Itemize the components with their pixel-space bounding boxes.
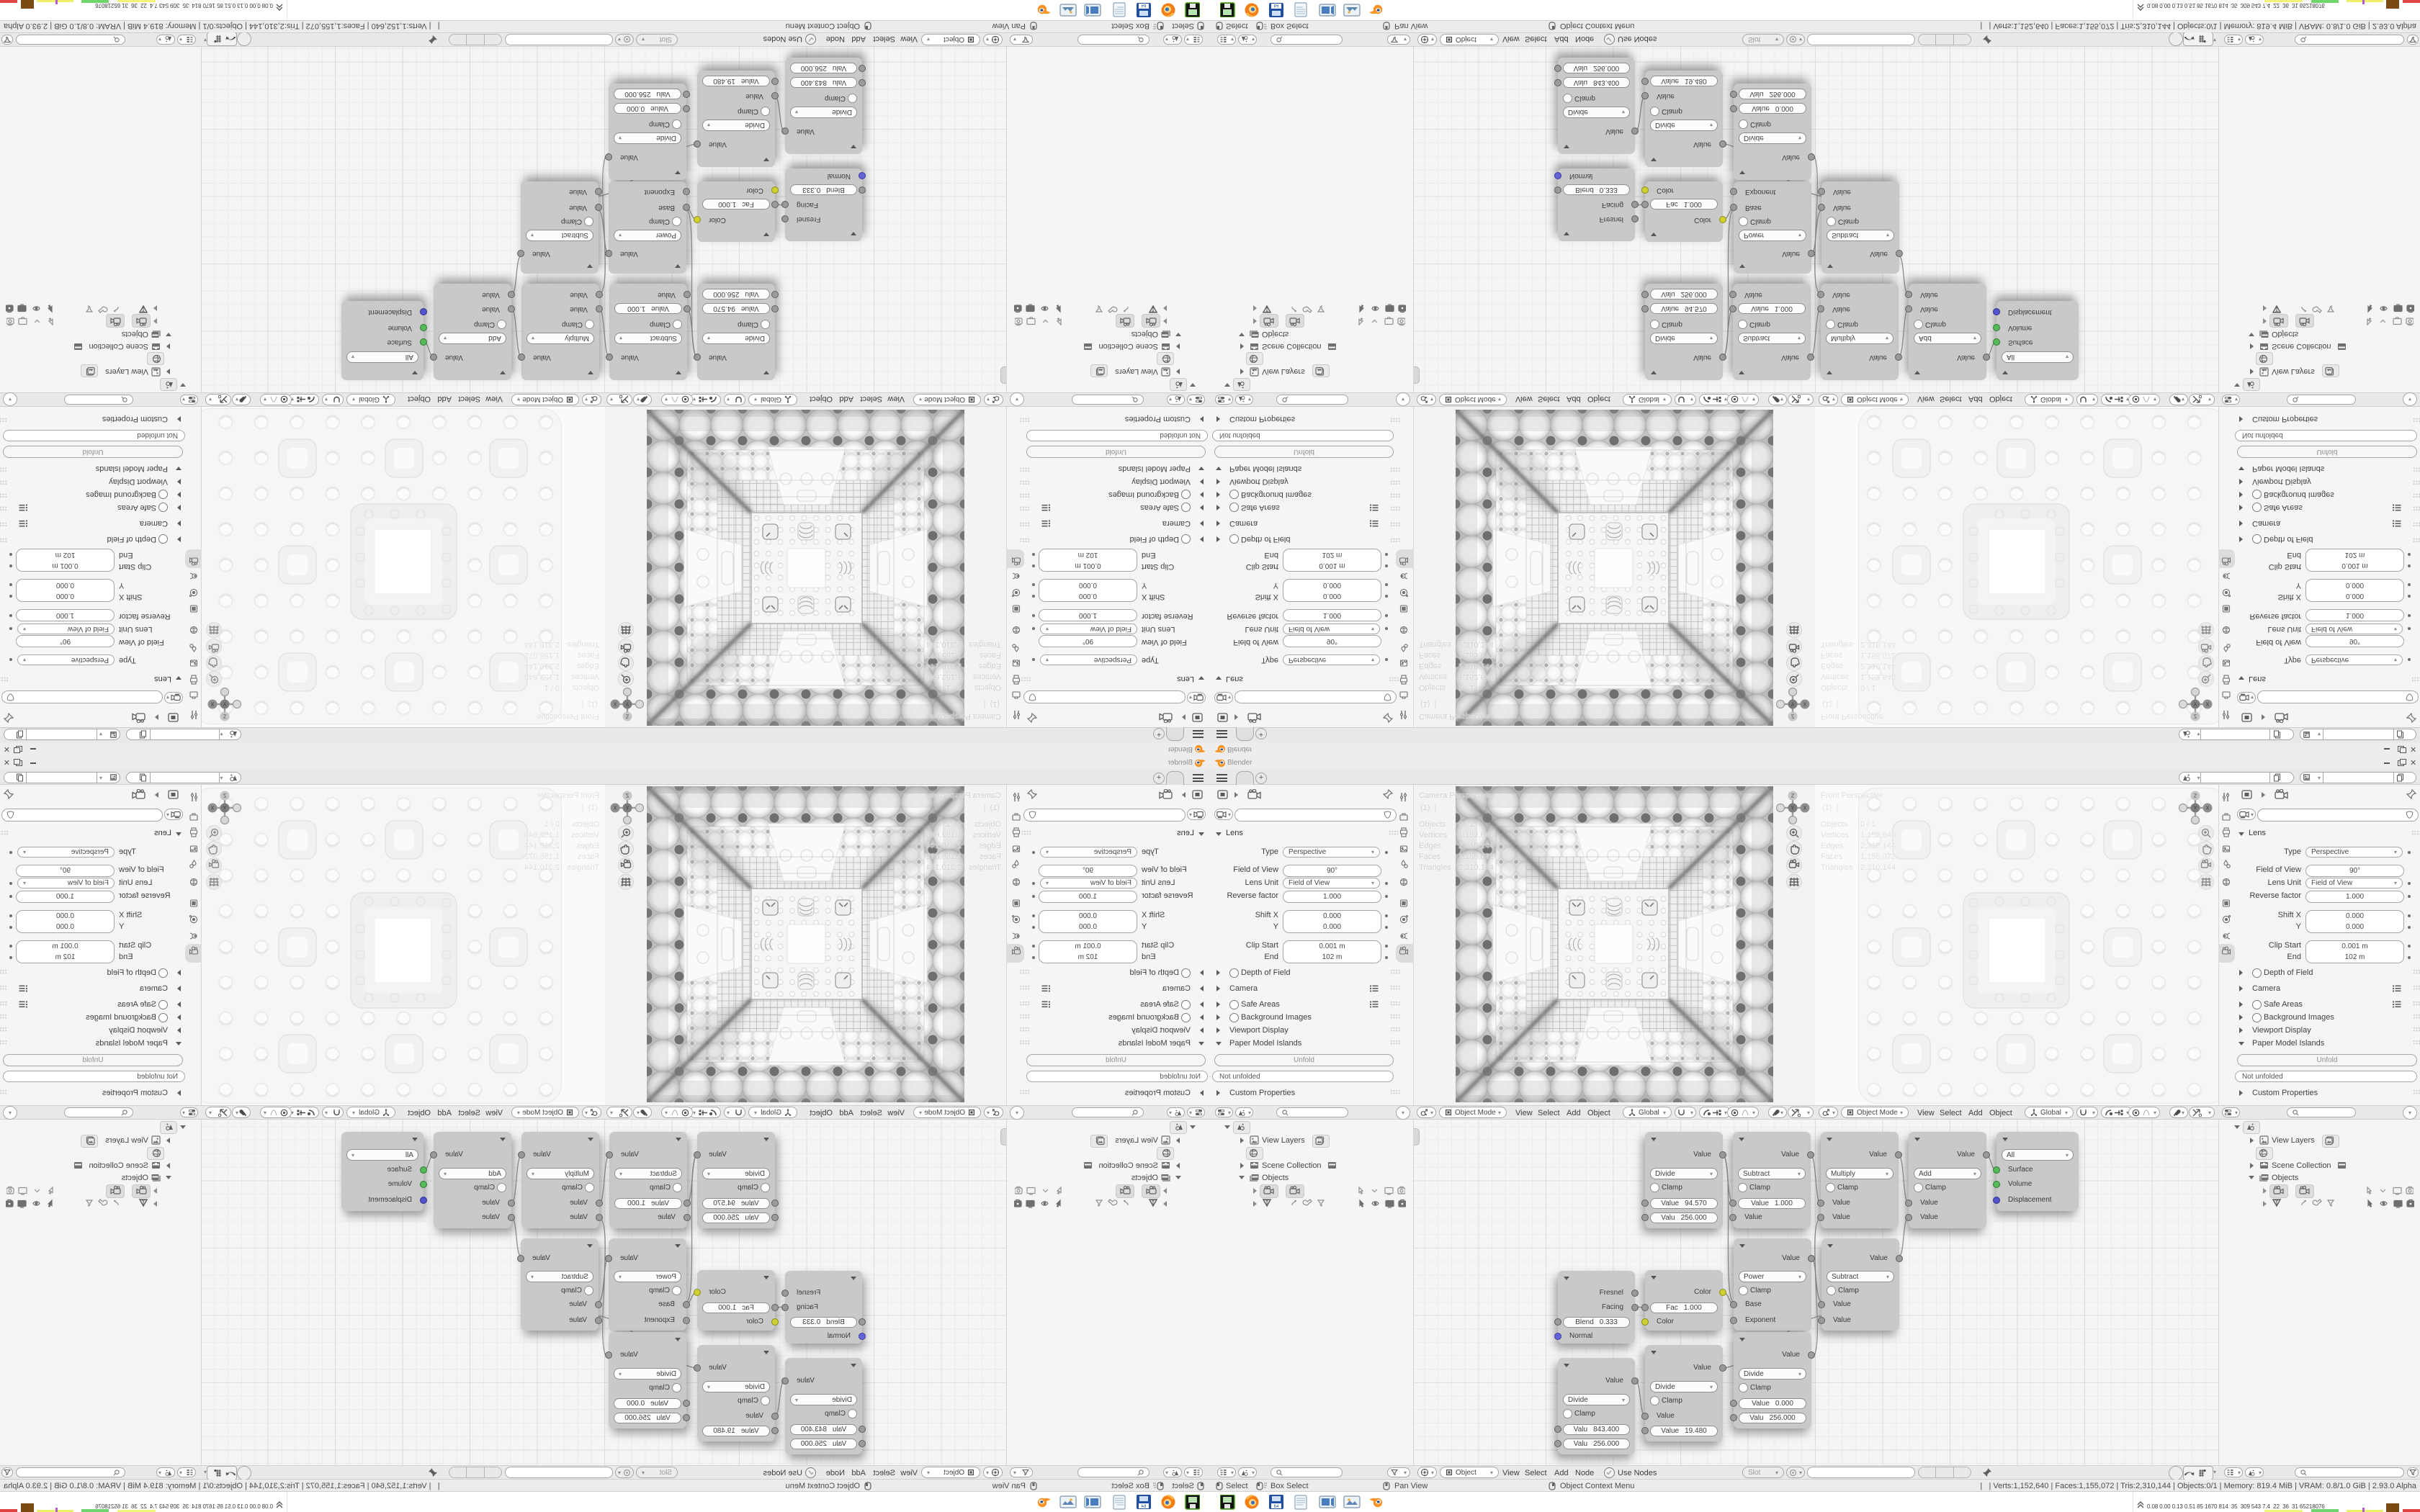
svg-text:Y: Y <box>223 806 226 811</box>
svg-text:Y: Y <box>1791 806 1795 811</box>
svg-text:64: 64 <box>1274 3 1279 7</box>
svg-text:X: X <box>1803 701 1807 706</box>
svg-text:X: X <box>613 701 617 706</box>
svg-text:64: 64 <box>1141 3 1146 7</box>
svg-text:64: 64 <box>1141 1505 1146 1509</box>
svg-text:Y: Y <box>1791 701 1795 706</box>
svg-text:Y: Y <box>223 701 226 706</box>
svg-text:X: X <box>1803 806 1807 811</box>
svg-text:Y: Y <box>625 806 629 811</box>
svg-text:Y: Y <box>625 701 629 706</box>
svg-text:Y: Y <box>2194 701 2197 706</box>
svg-text:Z: Z <box>1791 794 1795 799</box>
svg-text:X: X <box>210 701 214 706</box>
svg-text:X: X <box>2206 701 2210 706</box>
svg-text:Z: Z <box>223 714 226 719</box>
svg-text:Z: Z <box>625 794 629 799</box>
svg-text:Z: Z <box>625 714 629 719</box>
svg-text:Z: Z <box>2194 794 2197 799</box>
svg-text:Z: Z <box>2194 714 2197 719</box>
svg-text:Y: Y <box>2194 806 2197 811</box>
svg-text:X: X <box>2206 806 2210 811</box>
svg-text:Z: Z <box>223 794 226 799</box>
svg-text:Z: Z <box>1791 714 1795 719</box>
svg-text:X: X <box>613 806 617 811</box>
svg-text:64: 64 <box>1274 1505 1279 1509</box>
svg-text:X: X <box>210 806 214 811</box>
